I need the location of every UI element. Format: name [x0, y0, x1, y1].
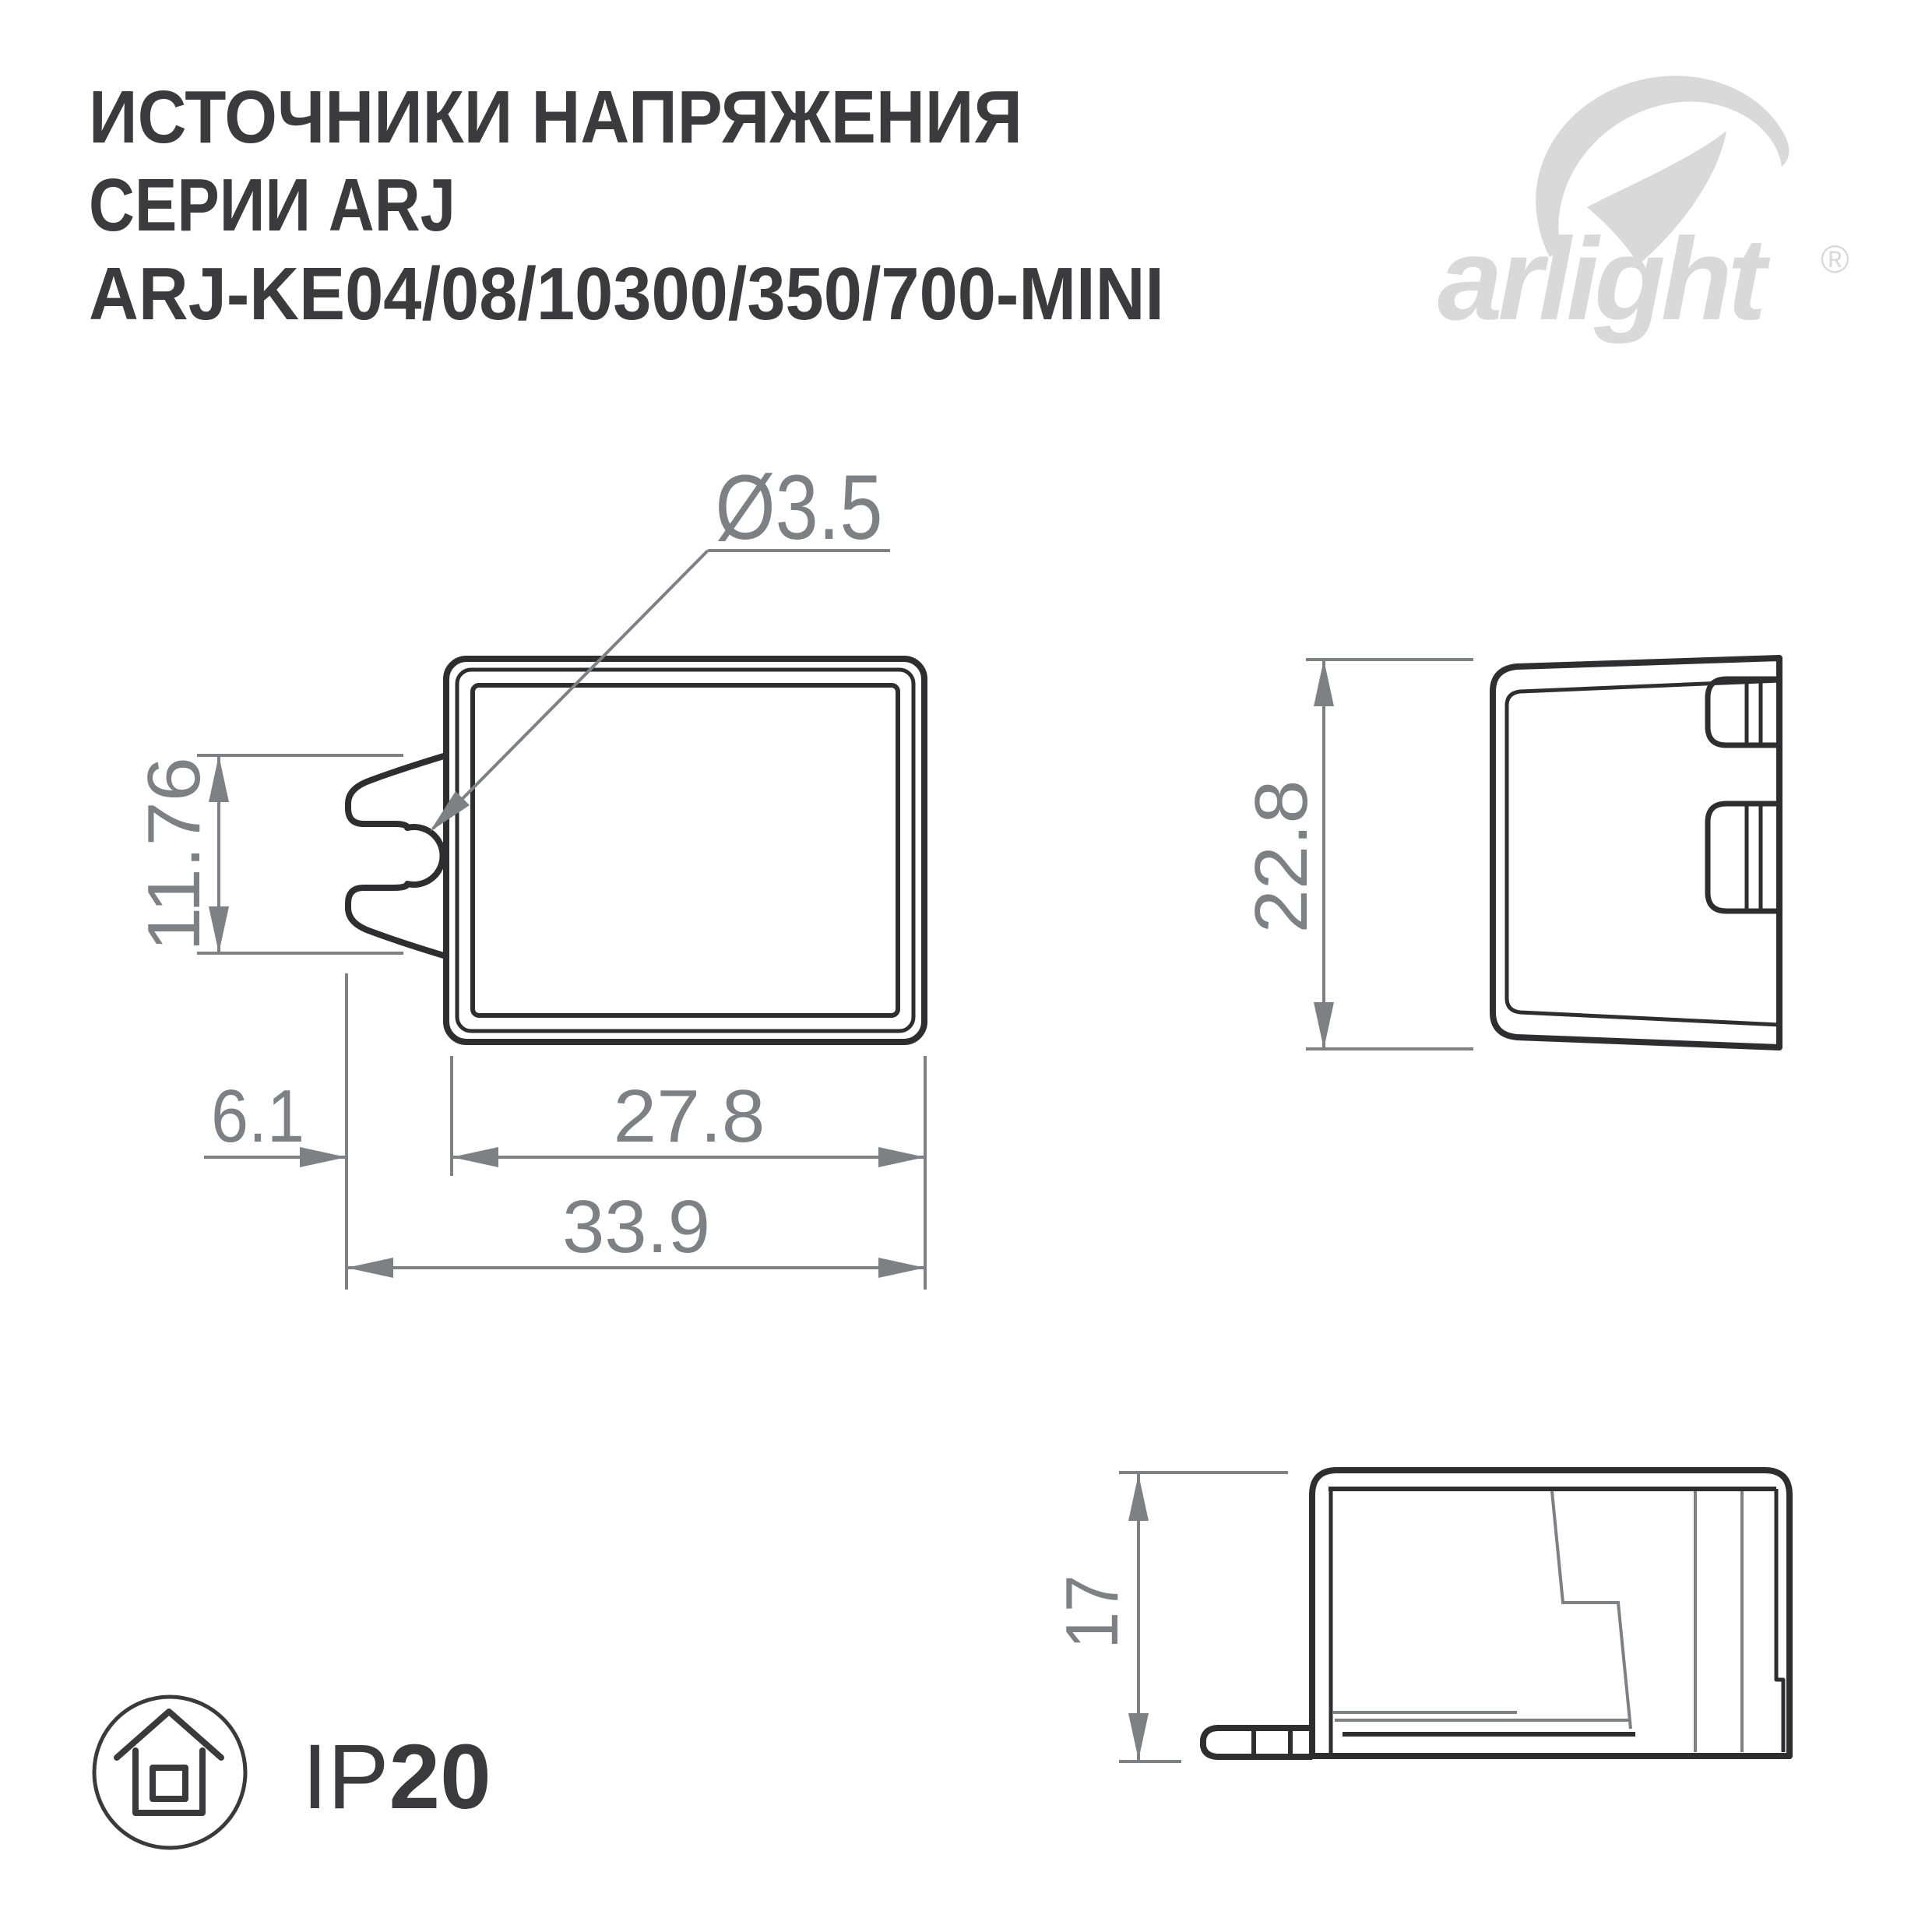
dim-side-height: 22.8	[1240, 660, 1473, 1049]
dim-label-body-width: 27.8	[614, 1075, 765, 1158]
ip-rating-badge: IP20	[94, 1697, 491, 1848]
dim-label-hole-diameter: Ø3.5	[716, 456, 883, 559]
badge-circle	[94, 1697, 245, 1848]
arrowhead-right-icon	[878, 1258, 925, 1278]
logo-registered-mark: ®	[1821, 238, 1849, 281]
side-outer-case	[1493, 658, 1779, 1047]
dim-label-side-height: 22.8	[1240, 780, 1323, 934]
arrowhead-left-icon	[347, 1258, 393, 1278]
front-view: 11.76 Ø3.5 6.1 27.8	[132, 456, 925, 1290]
indoor-house-icon	[117, 1712, 221, 1813]
dim-tab-offset: 6.1	[204, 1075, 347, 1167]
page-title-line1: ИСТОЧНИКИ НАПРЯЖЕНИЯ	[89, 76, 1022, 159]
arlight-logo: arlight ®	[1438, 76, 1849, 344]
arrowhead-up-icon	[1128, 1474, 1149, 1521]
ip-prefix: IP	[302, 1726, 389, 1828]
terminal-cutout-bottom	[1708, 804, 1779, 911]
arrowhead-right-icon	[300, 1147, 347, 1167]
page-title-line2: СЕРИИ ARJ	[89, 164, 456, 247]
dim-label-profile-height: 17	[1050, 1575, 1134, 1649]
front-outer-case	[446, 659, 924, 1042]
house-window	[153, 1768, 185, 1799]
pcb-step-line	[1552, 1491, 1631, 1729]
logo-wordmark: arlight	[1438, 213, 1771, 344]
ip-value: 20	[389, 1726, 491, 1828]
dim-label-total-width: 33.9	[562, 1185, 710, 1269]
cable-clamp-tab	[348, 755, 446, 956]
technical-drawing-sheet: ИСТОЧНИКИ НАПРЯЖЕНИЯ СЕРИИ ARJ ARJ-KE04/…	[0, 0, 1932, 1932]
page-title-line3: ARJ-KE04/08/10300/350/700-MINI	[89, 252, 1164, 336]
arrowhead-up-icon	[1314, 660, 1334, 706]
dim-total-width: 33.9	[347, 1185, 925, 1278]
front-case-edge	[457, 670, 913, 1031]
terminal-cutout-top	[1708, 679, 1779, 745]
house-walls	[135, 1751, 202, 1813]
front-lid-face	[473, 685, 898, 1015]
side-case-edge	[1507, 681, 1779, 1025]
arrowhead-down-icon	[1314, 1002, 1334, 1049]
arrowhead-right-icon	[878, 1147, 925, 1167]
dim-label-tab-offset: 6.1	[211, 1075, 304, 1158]
ip-rating-label: IP20	[302, 1726, 491, 1828]
profile-view: 17	[1050, 1470, 1789, 1761]
dim-body-width: 27.8	[452, 1075, 925, 1167]
dim-label-notch-height: 11.76	[132, 757, 216, 952]
arrowhead-down-icon	[1128, 1713, 1149, 1760]
inner-right-line	[1776, 1489, 1783, 1752]
mounting-flange	[1203, 1728, 1312, 1757]
header: ИСТОЧНИКИ НАПРЯЖЕНИЯ СЕРИИ ARJ ARJ-KE04/…	[89, 76, 1164, 336]
dim-hole-diameter: Ø3.5	[430, 456, 890, 832]
arrowhead-left-icon	[452, 1147, 498, 1167]
side-view: 22.8	[1240, 658, 1779, 1049]
dim-profile-height: 17	[1050, 1473, 1288, 1761]
